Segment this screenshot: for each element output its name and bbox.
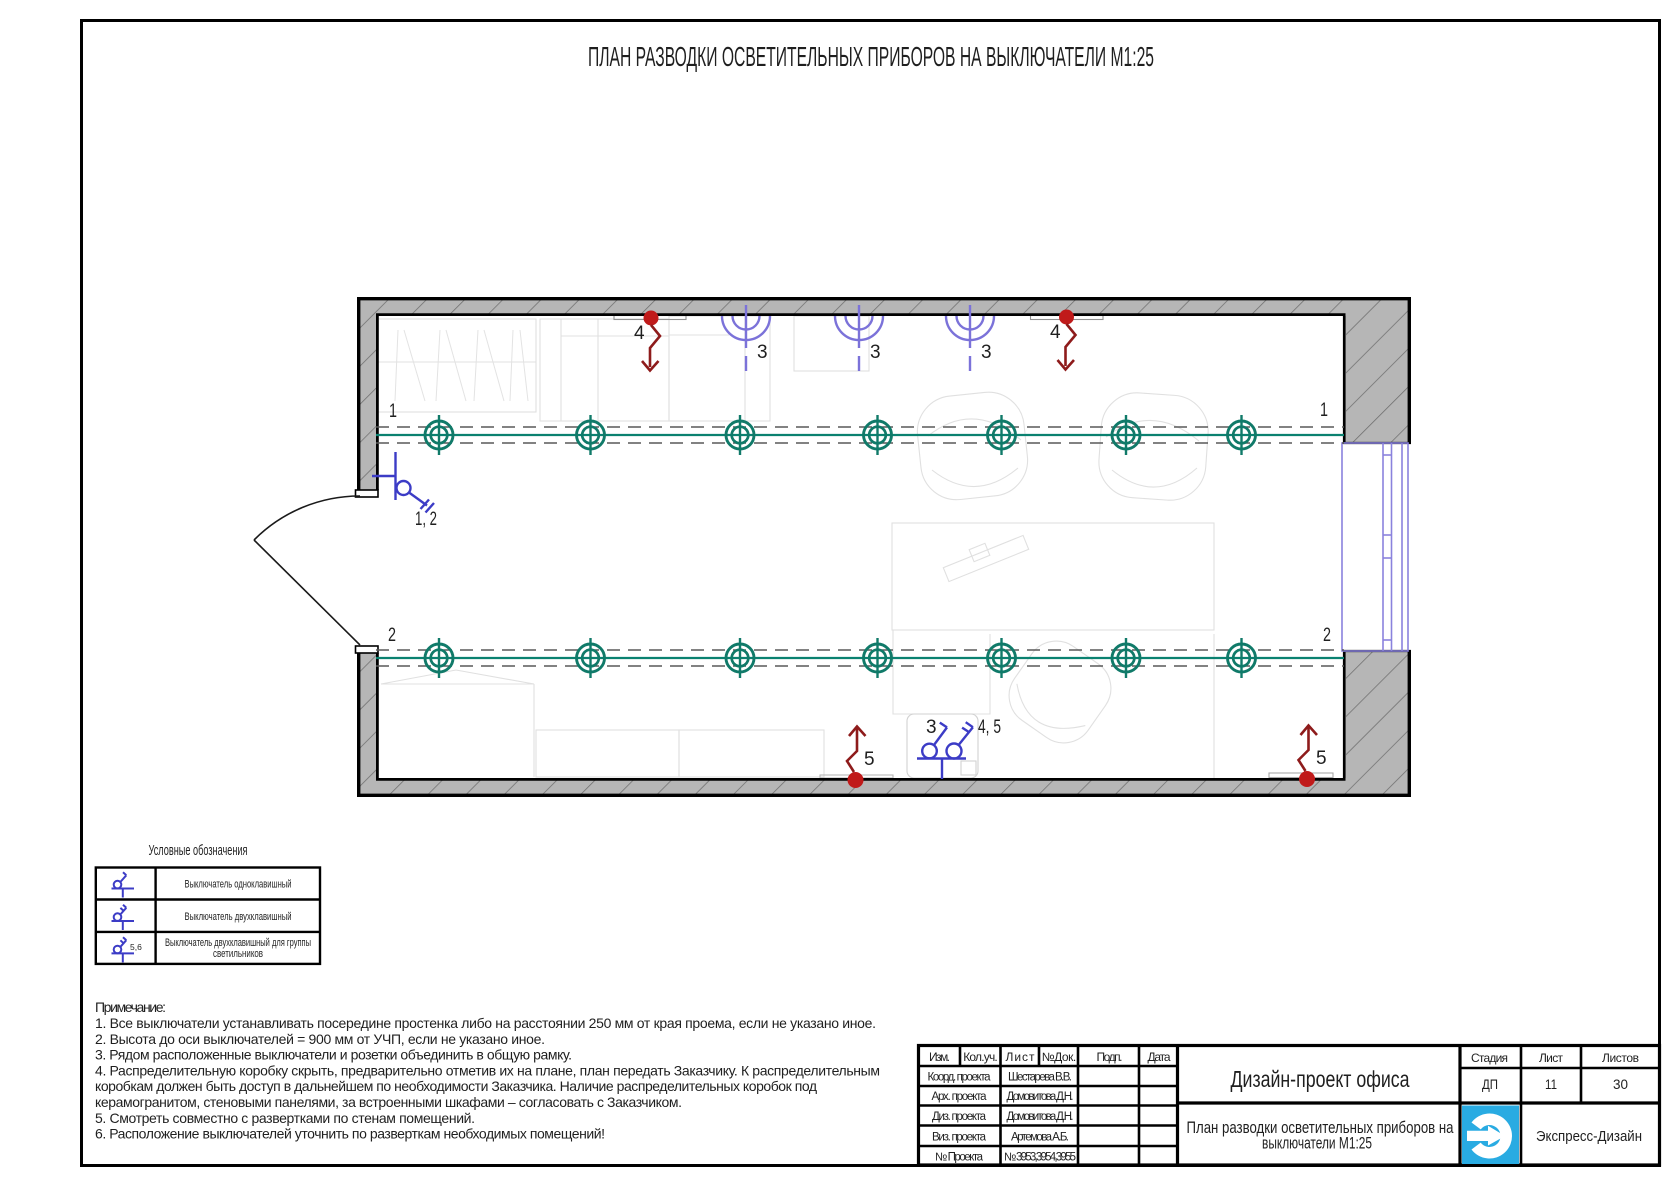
- svg-text:2: 2: [388, 625, 396, 646]
- svg-text:1, 2: 1, 2: [415, 509, 437, 530]
- svg-text:Кол.уч.: Кол.уч.: [963, 1050, 998, 1064]
- svg-text:Домовитова Д.Н.: Домовитова Д.Н.: [1007, 1091, 1074, 1103]
- svg-text:5,6: 5,6: [130, 942, 142, 952]
- svg-text:Выключатель двухклавишный: Выключатель двухклавишный: [185, 911, 292, 923]
- svg-text:Изм.: Изм.: [929, 1050, 950, 1064]
- svg-text:4: 4: [634, 323, 645, 344]
- svg-text:керамогранитом, стеновыми пане: керамогранитом, стеновыми панелями, за в…: [95, 1094, 682, 1110]
- svg-text:30: 30: [1613, 1076, 1628, 1092]
- svg-text:Коорд. проекта: Коорд. проекта: [928, 1072, 992, 1084]
- svg-text:3: 3: [870, 342, 881, 363]
- svg-text:4. Распределительную коробку с: 4. Распределительную коробку скрыть, пре…: [95, 1062, 880, 1078]
- svg-text:3: 3: [757, 342, 768, 363]
- svg-text:3: 3: [981, 342, 992, 363]
- svg-text:11: 11: [1545, 1076, 1557, 1092]
- svg-text:5. Смотреть совместно с развер: 5. Смотреть совместно с развертками по с…: [95, 1110, 475, 1126]
- svg-text:Подп.: Подп.: [1097, 1050, 1123, 1064]
- svg-text:Примечание:: Примечание:: [95, 999, 166, 1015]
- svg-text:Листов: Листов: [1602, 1051, 1639, 1065]
- svg-text:Экспресс-Дизайн: Экспресс-Дизайн: [1536, 1128, 1642, 1145]
- svg-text:№Док.: №Док.: [1042, 1050, 1077, 1064]
- svg-text:1: 1: [389, 401, 397, 422]
- svg-text:Лист: Лист: [1006, 1050, 1036, 1064]
- svg-text:4: 4: [1050, 322, 1061, 343]
- svg-text:Арх. проекта: Арх. проекта: [932, 1091, 988, 1103]
- svg-text:Выключатель одноклавишный: Выключатель одноклавишный: [185, 879, 292, 891]
- svg-text:1. Все выключатели устанавлива: 1. Все выключатели устанавливать посеред…: [95, 1015, 876, 1031]
- svg-text:Диз. проекта: Диз. проекта: [932, 1111, 987, 1123]
- svg-text:3: 3: [926, 717, 937, 738]
- svg-text:светильников: светильников: [213, 948, 263, 960]
- svg-text:№ 3953,3954,3955: № 3953,3954,3955: [1004, 1152, 1076, 1164]
- svg-text:Дизайн-проект офиса: Дизайн-проект офиса: [1231, 1066, 1410, 1092]
- svg-text:ПЛАН РАЗВОДКИ ОСВЕТИТЕЛЬНЫХ ПР: ПЛАН РАЗВОДКИ ОСВЕТИТЕЛЬНЫХ ПРИБОРОВ НА …: [588, 41, 1154, 72]
- svg-text:Виз. проекта: Виз. проекта: [932, 1132, 987, 1144]
- svg-text:3. Рядом расположенные выключа: 3. Рядом расположенные выключатели и роз…: [95, 1047, 572, 1063]
- svg-text:коробкам должен быть доступ в: коробкам должен быть доступ в дальнейшем…: [95, 1078, 817, 1094]
- svg-text:4, 5: 4, 5: [978, 717, 1001, 738]
- svg-text:5: 5: [864, 749, 875, 770]
- svg-text:Дата: Дата: [1148, 1050, 1171, 1064]
- svg-text:2: 2: [1323, 625, 1331, 646]
- svg-text:Условные обозначения: Условные обозначения: [149, 843, 248, 859]
- svg-text:6. Расположение выключателей у: 6. Расположение выключателей уточнить по…: [95, 1126, 605, 1142]
- svg-text:ДП: ДП: [1482, 1076, 1498, 1092]
- svg-text:№ Проекта: № Проекта: [935, 1152, 984, 1164]
- svg-text:выключатели М1:25: выключатели М1:25: [1262, 1134, 1372, 1153]
- svg-text:1: 1: [1320, 400, 1328, 421]
- svg-text:Шестарева В.В.: Шестарева В.В.: [1008, 1072, 1072, 1084]
- svg-text:Домовитова Д.Н.: Домовитова Д.Н.: [1007, 1111, 1074, 1123]
- svg-text:2. Высота до оси выключателей: 2. Высота до оси выключателей = 900 мм о…: [95, 1031, 545, 1047]
- svg-text:Артемова А.Б.: Артемова А.Б.: [1011, 1132, 1069, 1144]
- svg-text:Стадия: Стадия: [1471, 1051, 1508, 1065]
- svg-text:Лист: Лист: [1539, 1051, 1564, 1065]
- svg-text:5: 5: [1316, 748, 1327, 769]
